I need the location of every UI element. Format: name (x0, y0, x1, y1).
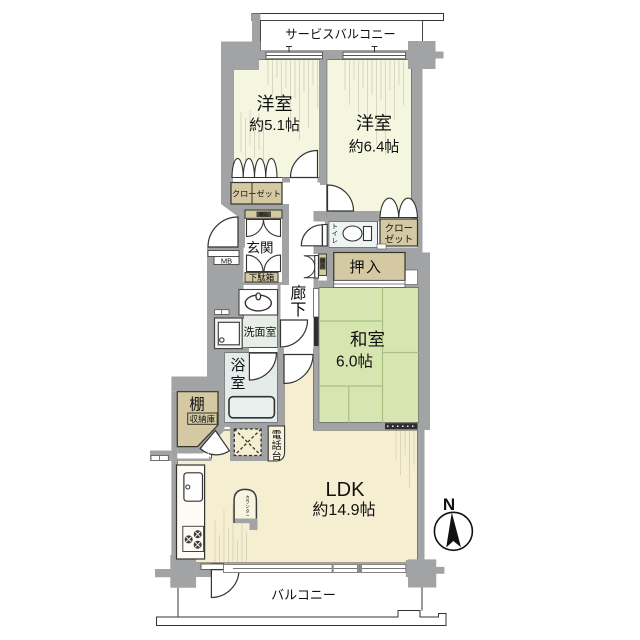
svg-text:収納庫: 収納庫 (190, 414, 216, 424)
svg-text:台: 台 (272, 450, 282, 463)
svg-text:浴: 浴 (230, 357, 245, 374)
svg-text:電: 電 (272, 430, 282, 442)
svg-text:和室: 和室 (350, 330, 385, 350)
svg-text:約5.1帖: 約5.1帖 (249, 117, 300, 134)
svg-text:レ: レ (332, 238, 339, 245)
svg-text:踏込: 踏込 (259, 211, 269, 218)
svg-text:下駄箱: 下駄箱 (249, 272, 275, 282)
svg-text:サービスバルコニー: サービスバルコニー (285, 27, 395, 41)
svg-text:洗面室: 洗面室 (244, 325, 277, 339)
svg-text:ゼット: ゼット (385, 234, 414, 246)
svg-text:クロー: クロー (385, 224, 414, 235)
svg-text:ト: ト (332, 224, 339, 231)
svg-text:N: N (443, 495, 455, 514)
svg-text:玄関: 玄関 (247, 240, 274, 256)
svg-text:6.0帖: 6.0帖 (336, 353, 373, 371)
svg-text:約14.9帖: 約14.9帖 (312, 501, 375, 519)
svg-text:押入: 押入 (349, 259, 382, 276)
svg-text:クローゼット: クローゼット (232, 188, 281, 198)
svg-text:入: 入 (320, 264, 325, 269)
svg-text:MB: MB (221, 256, 232, 265)
svg-text:イ: イ (332, 231, 339, 238)
svg-text:下: 下 (290, 302, 306, 319)
svg-text:約6.4帖: 約6.4帖 (349, 139, 400, 156)
svg-text:洋室: 洋室 (257, 94, 293, 114)
svg-text:洋室: 洋室 (356, 114, 392, 134)
svg-text:ー: ー (245, 513, 249, 518)
svg-text:棚: 棚 (189, 396, 205, 414)
svg-text:室: 室 (230, 375, 245, 392)
svg-text:話: 話 (272, 439, 282, 452)
svg-text:バルコニー: バルコニー (271, 588, 336, 603)
svg-text:LDK: LDK (326, 479, 366, 501)
svg-text:廊: 廊 (290, 285, 306, 303)
